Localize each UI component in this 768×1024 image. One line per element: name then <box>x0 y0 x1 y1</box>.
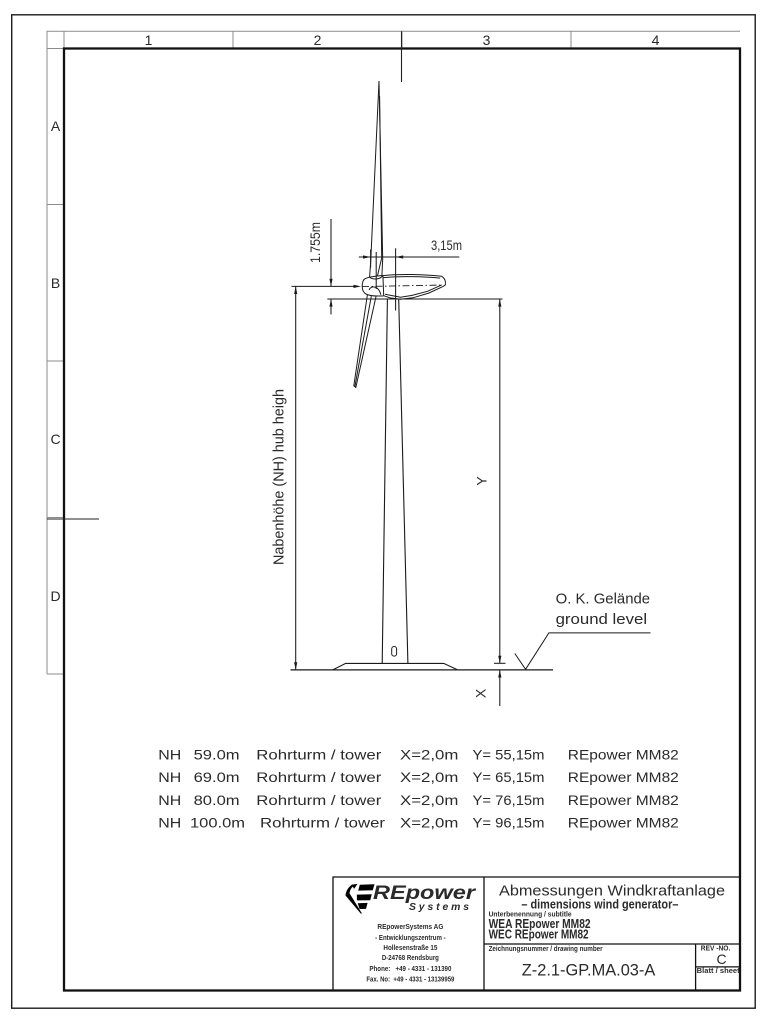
svg-text:S y s t e m s: S y s t e m s <box>409 901 469 913</box>
svg-text:59.0m: 59.0m <box>194 747 240 763</box>
svg-text:Zeichnungsnummer / drawing num: Zeichnungsnummer / drawing number <box>489 944 603 953</box>
svg-text:C: C <box>50 431 60 447</box>
svg-text:Rohrturm / tower: Rohrturm / tower <box>256 792 381 808</box>
svg-text:Hollesenstraße 15: Hollesenstraße 15 <box>383 943 437 952</box>
svg-text:- Entwicklungszentrum -: - Entwicklungszentrum - <box>375 933 446 942</box>
svg-text:Y= 96,15m: Y= 96,15m <box>473 815 545 831</box>
svg-text:69.0m: 69.0m <box>194 769 240 785</box>
svg-text:Y: Y <box>474 476 490 486</box>
svg-text:REpowerSystems AG: REpowerSystems AG <box>377 922 443 931</box>
svg-text:WEC REpower MM82: WEC REpower MM82 <box>489 927 589 941</box>
svg-text:REpower MM82: REpower MM82 <box>568 769 679 785</box>
svg-text:100.0m: 100.0m <box>190 815 245 831</box>
svg-text:REpower MM82: REpower MM82 <box>568 792 679 808</box>
svg-text:B: B <box>51 275 60 291</box>
svg-text:NH: NH <box>158 769 181 785</box>
svg-text:Blatt / sheet: Blatt / sheet <box>697 966 741 975</box>
svg-text:NH: NH <box>158 792 181 808</box>
svg-text:Y= 76,15m: Y= 76,15m <box>473 792 545 808</box>
svg-text:X: X <box>473 688 489 698</box>
svg-text:3,15m: 3,15m <box>431 237 462 253</box>
svg-text:X=2,0m: X=2,0m <box>400 747 458 763</box>
svg-text:NH: NH <box>158 747 181 763</box>
svg-text:1: 1 <box>145 32 153 48</box>
svg-text:REpower MM82: REpower MM82 <box>568 747 679 763</box>
svg-text:Nabenhöhe (NH) hub heigh: Nabenhöhe (NH) hub heigh <box>272 389 288 565</box>
svg-text:NH: NH <box>158 815 181 831</box>
svg-text:2: 2 <box>314 32 322 48</box>
svg-text:D-24768 Rendsburg: D-24768 Rendsburg <box>382 953 439 962</box>
svg-text:Fax. No: +49 - 4331 - 1313995: Fax. No: +49 - 4331 - 13139959 <box>366 974 454 983</box>
svg-text:Rohrturm / tower: Rohrturm / tower <box>256 769 381 785</box>
svg-text:Z-2.1-GP.MA.03-A: Z-2.1-GP.MA.03-A <box>522 961 656 980</box>
svg-text:REpower MM82: REpower MM82 <box>568 815 679 831</box>
svg-text:O. K. Gelände: O. K. Gelände <box>556 590 651 607</box>
svg-text:80.0m: 80.0m <box>194 792 240 808</box>
svg-text:4: 4 <box>652 32 660 48</box>
svg-text:C: C <box>717 951 727 967</box>
svg-text:A: A <box>51 118 61 134</box>
svg-text:Y= 55,15m: Y= 55,15m <box>473 747 545 763</box>
svg-text:X=2,0m: X=2,0m <box>400 815 458 831</box>
svg-text:3: 3 <box>483 32 491 48</box>
svg-text:Y= 65,15m: Y= 65,15m <box>473 769 545 785</box>
svg-text:ground level: ground level <box>556 611 648 628</box>
svg-text:Rohrturm / tower: Rohrturm / tower <box>256 747 381 763</box>
svg-text:D: D <box>50 588 60 604</box>
svg-text:Phone: +49 - 4331 - 131390: Phone: +49 - 4331 - 131390 <box>369 964 451 973</box>
svg-text:1.755m: 1.755m <box>307 222 323 263</box>
svg-text:Rohrturm / tower: Rohrturm / tower <box>260 815 385 831</box>
svg-text:X=2,0m: X=2,0m <box>400 792 458 808</box>
svg-text:X=2,0m: X=2,0m <box>400 769 458 785</box>
